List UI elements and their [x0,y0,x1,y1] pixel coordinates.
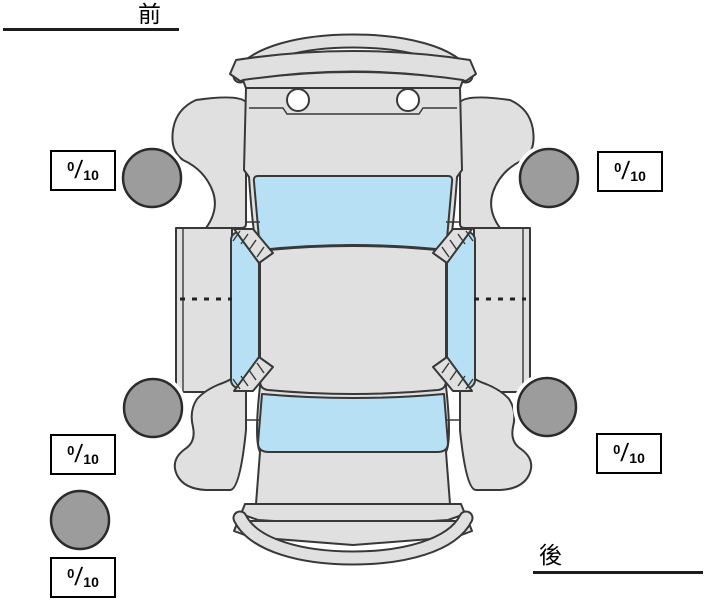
tread-separator: / [620,441,630,466]
tread-separator: / [74,158,84,183]
front-underline [3,28,179,31]
front-left-fender [172,97,246,228]
left-headlight-icon [287,89,309,111]
tread-value: 0 [67,566,74,581]
tread-rating-spare: 0 / 10 [50,557,116,598]
tread-separator: / [74,442,84,467]
tread-rating-front-right: 0 / 10 [597,151,663,192]
rear-label: 後 [539,544,562,567]
tread-value: 0 [67,159,74,174]
tread-value: 0 [613,442,620,457]
roof-panel [260,246,446,394]
tread-rating-front-left: 0 / 10 [50,150,116,191]
tread-separator: / [74,565,84,590]
left-door-panel [176,228,232,392]
tire-spare-icon [51,491,109,549]
front-label: 前 [138,3,161,26]
tire-front-left-icon [123,149,181,207]
rear-underline [533,571,703,574]
tire-rear-left-icon [124,379,182,437]
tread-value: 0 [614,160,621,175]
tire-rear-right-icon [518,378,576,436]
tread-max: 10 [630,168,646,184]
tread-separator: / [621,159,631,184]
car-top-view-diagram [0,0,711,600]
tire-front-right-icon [520,149,578,207]
windshield [254,176,452,250]
vehicle-inspection-diagram: 前 後 0 / 10 0 / 10 0 / 10 0 / 10 0 / 10 [0,0,711,600]
tread-max: 10 [83,167,99,183]
right-headlight-icon [397,89,419,111]
tread-rating-rear-right: 0 / 10 [596,433,662,474]
tread-value: 0 [67,443,74,458]
rear-window [258,394,448,452]
tread-max: 10 [83,451,99,467]
tread-max: 10 [83,574,99,590]
tread-max: 10 [629,450,645,466]
tread-rating-rear-left: 0 / 10 [50,434,116,475]
right-door-panel [474,228,530,392]
